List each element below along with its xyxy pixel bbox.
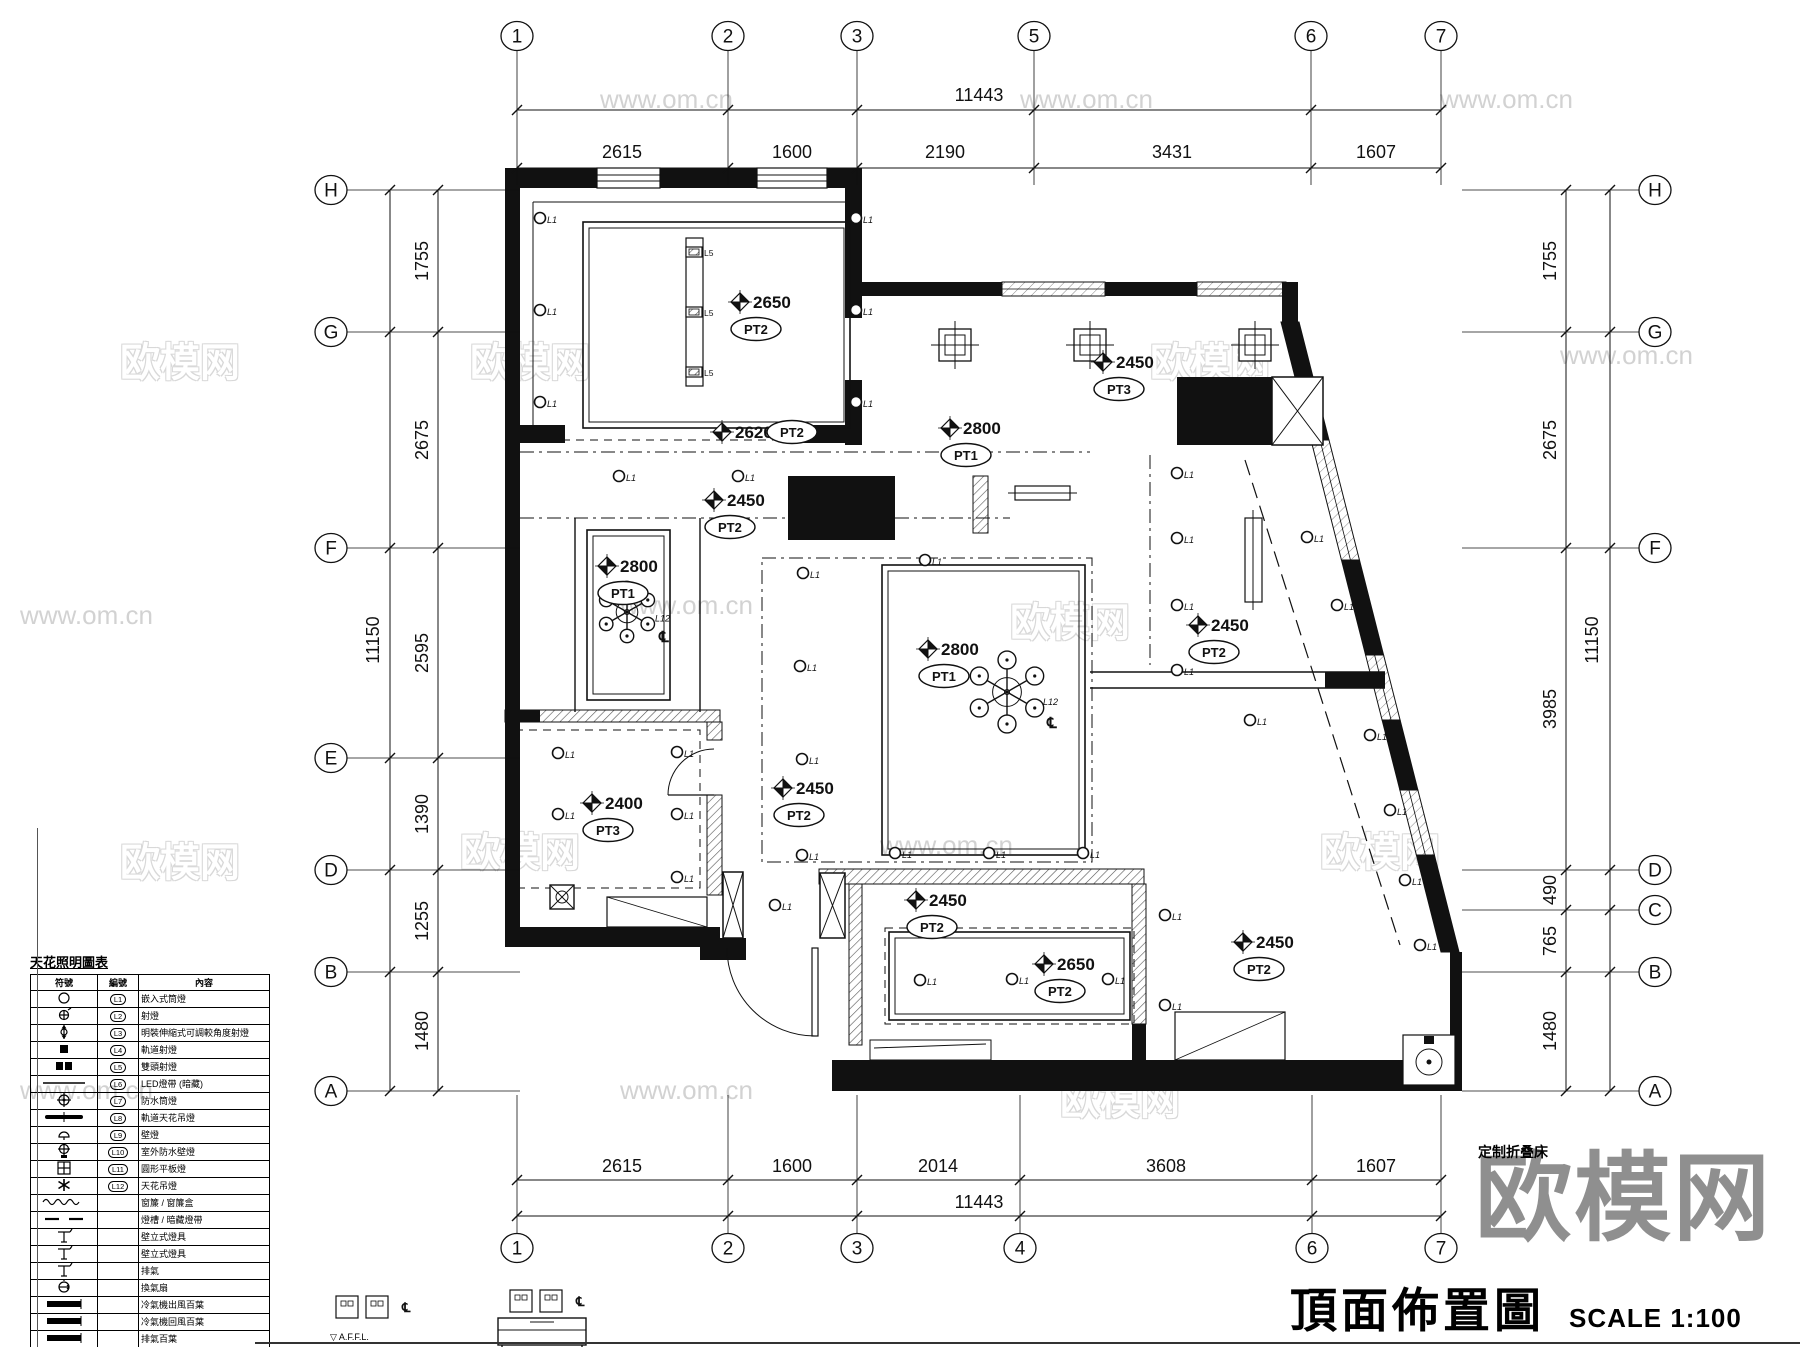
tpin-icon — [37, 1263, 91, 1277]
annotation-text: L1 — [1377, 732, 1387, 742]
legend-symbol-cell — [31, 1110, 98, 1127]
legend-row: 壁立式燈具 — [31, 1246, 270, 1263]
dim-text: 3985 — [1540, 689, 1560, 729]
legend-code: L5 — [110, 1062, 126, 1073]
legend-row: L1嵌入式筒燈 — [31, 991, 270, 1008]
sheet-left-rule — [37, 828, 38, 1347]
legend-desc: 冷氣機出風百葉 — [139, 1297, 270, 1314]
grid-bubble-label: C — [1648, 901, 1662, 922]
finish-tag: PT2 — [787, 808, 811, 823]
dim-text: 2014 — [918, 1156, 958, 1176]
legend-symbol-cell — [31, 1076, 98, 1093]
legend-header: 符號 — [31, 975, 98, 991]
downlight-symbol: L1 — [797, 754, 820, 767]
legend-symbol-cell — [31, 1297, 98, 1314]
fan-icon — [37, 1280, 91, 1294]
downlight-symbol: L1 — [1103, 974, 1126, 987]
legend-code-cell: L5 — [98, 1059, 139, 1076]
grid-left: HGFEDBA11150175526752595139012551480 — [315, 176, 520, 1106]
sink-drain — [1427, 1060, 1432, 1065]
ceiling-height-label: 2450PT2 — [904, 888, 967, 939]
grid-bubble: 6 — [1295, 22, 1327, 51]
downlight-symbol: L1 — [798, 568, 821, 581]
crosshair2-icon — [37, 1144, 91, 1158]
finish-tag: PT2 — [718, 520, 742, 535]
annotation-text: L1 — [1184, 470, 1194, 480]
annotation-text: ℄ — [401, 1300, 411, 1315]
grid-bubble: H — [1639, 176, 1671, 205]
annotation-text: L1 — [684, 749, 694, 759]
legend-row: L9壁燈 — [31, 1127, 270, 1144]
downlight-symbol: L1 — [1007, 974, 1030, 987]
door-leaf — [812, 948, 818, 1036]
legend-code-cell — [98, 1229, 139, 1246]
downlight-symbol: L1 — [1078, 848, 1101, 861]
legend-row: L3明裝伸縮式可調較角度射燈 — [31, 1025, 270, 1042]
downlight-symbol: L1 — [1172, 600, 1195, 613]
folding-bed-note: 定制折叠床 — [1478, 1142, 1548, 1162]
louver-icon — [37, 1314, 91, 1328]
legend-symbol-cell — [31, 1042, 98, 1059]
dim-text: 2595 — [412, 633, 432, 673]
dim-text: 11443 — [955, 1192, 1004, 1212]
downlight-symbol: L1 — [1172, 468, 1195, 481]
ceiling-height-value: 2650 — [753, 293, 791, 312]
annotation-text: L1 — [932, 557, 942, 567]
dim-text: 1390 — [412, 794, 432, 834]
legend-row: 排氣百葉 — [31, 1331, 270, 1347]
finish-tag: PT3 — [596, 823, 620, 838]
annotation-text: L1 — [1344, 602, 1354, 612]
circle-icon — [37, 991, 91, 1005]
dim-text: 1480 — [412, 1011, 432, 1051]
legend-desc: 窗簾 / 窗簾盒 — [139, 1195, 270, 1212]
louver-icon — [37, 1331, 91, 1345]
legend-row: L2射燈 — [31, 1008, 270, 1025]
ceiling-height-value: 2800 — [620, 557, 658, 576]
downlight-symbol: L1 — [1332, 600, 1355, 613]
annotation-text: L1 — [863, 307, 873, 317]
grid-bubble-label: E — [325, 749, 338, 770]
door-swing-arc — [727, 948, 815, 1036]
annotation-text: L5 — [704, 248, 714, 258]
finish-tag: PT1 — [611, 586, 635, 601]
grid-bubble: A — [1639, 1077, 1671, 1106]
sq-icon — [37, 1042, 91, 1056]
legend-title: 天花照明圖表 — [30, 952, 280, 971]
drawing-title: 頂面佈置圖 — [1290, 1284, 1545, 1337]
legend-code: L10 — [108, 1147, 129, 1158]
legend-code-cell — [98, 1331, 139, 1347]
ceiling-height-label: 2800PT1 — [938, 416, 1001, 467]
annotation-text: L1 — [1184, 602, 1194, 612]
ceiling-height-value: 2450 — [1116, 353, 1154, 372]
grid-bubble: 4 — [1004, 1234, 1036, 1263]
grid-bubble: 3 — [841, 22, 873, 51]
ceiling-height-value: 2450 — [727, 491, 765, 510]
legend-code-cell — [98, 1280, 139, 1297]
downlight-symbol: L1 — [1172, 665, 1195, 678]
finish-tag: PT2 — [920, 920, 944, 935]
downlight-symbol: L1 — [1160, 910, 1183, 923]
spot-icon — [37, 1008, 91, 1022]
legend-header: 編號 — [98, 975, 139, 991]
ceiling-height-label: 2450PT2 — [1186, 613, 1249, 664]
slant-parallel-dashed — [1245, 460, 1400, 945]
dim-text: 1607 — [1356, 1156, 1396, 1176]
track-spotlight-symbol: L5 — [686, 247, 714, 258]
window — [757, 168, 827, 188]
annotation-text: L1 — [684, 811, 694, 821]
legend-row: L7防水筒燈 — [31, 1093, 270, 1110]
grid-bubble-label: 2 — [723, 1239, 734, 1260]
wall-hatch — [707, 722, 722, 740]
dim-text: 11150 — [1582, 616, 1602, 663]
annotation-text: L12 — [1043, 697, 1058, 707]
legend-code-cell — [98, 1263, 139, 1280]
legend-desc: 冷氣機回風百葉 — [139, 1314, 270, 1331]
grid-top: 1235671144326151600219034311607 — [501, 22, 1457, 186]
legend-desc: 室外防水壁燈 — [139, 1144, 270, 1161]
dim-text: 2615 — [602, 1156, 642, 1176]
finish-tag: PT2 — [1202, 645, 1226, 660]
legend-symbol-cell — [31, 1195, 98, 1212]
annotation-text: L1 — [1257, 717, 1267, 727]
dim-text: 11150 — [363, 616, 383, 663]
finish-tag: PT2 — [1048, 984, 1072, 999]
legend-code: L6 — [110, 1079, 126, 1090]
downlight-symbol: L1 — [1400, 875, 1423, 888]
legend-desc: 燈槽 / 暗藏燈帶 — [139, 1212, 270, 1229]
legend-desc: 壁燈 — [139, 1127, 270, 1144]
legend-code-cell — [98, 1195, 139, 1212]
legend-code: L1 — [110, 994, 126, 1005]
grid-bubble-label: G — [1648, 323, 1663, 344]
gridsq-icon — [37, 1161, 91, 1175]
grid-bubble-label: D — [324, 861, 338, 882]
legend-symbol-cell — [31, 1280, 98, 1297]
grid-bubble: C — [1639, 896, 1671, 925]
sheet-bottom-rule — [255, 1342, 1800, 1344]
grid-bubble-label: H — [324, 181, 338, 202]
annotation-text: ℄ — [1046, 715, 1057, 732]
dim-text: 11443 — [955, 85, 1004, 105]
wall-hatch — [849, 884, 862, 1045]
legend-code-cell: L3 — [98, 1025, 139, 1042]
legend-code-cell: L9 — [98, 1127, 139, 1144]
legend-desc: 壁立式燈具 — [139, 1246, 270, 1263]
switch-box — [510, 1290, 532, 1312]
grid-bubble: F — [315, 534, 347, 563]
grid-bottom: 1234671144326151600201436081607 — [501, 1095, 1457, 1263]
grid-bubble: E — [315, 744, 347, 773]
legend-desc: 雙頭射燈 — [139, 1059, 270, 1076]
grid-bubble: H — [315, 176, 347, 205]
downlight-symbol: L1 — [797, 850, 820, 863]
ceiling-detail-layer — [515, 222, 1455, 1085]
wall-hatch — [819, 869, 1144, 884]
annotation-text: L1 — [547, 307, 557, 317]
tpin-icon — [37, 1229, 91, 1243]
annotation-text: L5 — [704, 308, 714, 318]
downlight-symbol: L1 — [1302, 532, 1325, 545]
annotation-text: L1 — [565, 750, 575, 760]
legend-desc: 換氣扇 — [139, 1280, 270, 1297]
legend-code-cell: L12 — [98, 1178, 139, 1195]
downlight-symbol: L1 — [672, 809, 695, 822]
downlight-symbol: L1 — [770, 900, 793, 913]
grid-bubble: 7 — [1425, 1234, 1457, 1263]
finish-tag: PT2 — [780, 425, 804, 440]
annotation-text: L1 — [684, 874, 694, 884]
legend-symbol-cell — [31, 1008, 98, 1025]
legend-desc: 防水筒燈 — [139, 1093, 270, 1110]
legend-symbol-cell — [31, 1161, 98, 1178]
legend-row: 燈槽 / 暗藏燈帶 — [31, 1212, 270, 1229]
annotation-text: L1 — [863, 215, 873, 225]
grid-bubble: 1 — [501, 22, 533, 51]
ceiling-height-value: 2650 — [1057, 955, 1095, 974]
legend-code-cell — [98, 1297, 139, 1314]
annotation-text: L1 — [1172, 1002, 1182, 1012]
downlight-symbol: L1 — [553, 748, 576, 761]
downlight-symbol: L1 — [1160, 1000, 1183, 1013]
grid-bubble: 1 — [501, 1234, 533, 1263]
legend-symbol-cell — [31, 1178, 98, 1195]
legend-desc: 嵌入式筒燈 — [139, 991, 270, 1008]
annotation-text: L1 — [863, 399, 873, 409]
grid-bubble-label: 6 — [1306, 27, 1317, 48]
grid-square-light-symbol — [931, 321, 979, 369]
grid-bubble: A — [315, 1077, 347, 1106]
legend-row: L10室外防水壁燈 — [31, 1144, 270, 1161]
dim-text: 1607 — [1356, 142, 1396, 162]
ceiling-height-value: 2800 — [963, 419, 1001, 438]
ceiling-height-value: 2450 — [929, 891, 967, 910]
grid-bubble-label: A — [325, 1082, 338, 1103]
annotation-text: L1 — [1184, 667, 1194, 677]
annotation-text: L1 — [547, 399, 557, 409]
grid-bubble-label: F — [325, 539, 337, 560]
dim-text: 490 — [1540, 875, 1560, 905]
legend-code: L4 — [110, 1045, 126, 1056]
ceiling-height-value: 2400 — [605, 794, 643, 813]
downlight-symbol: L1 — [672, 747, 695, 760]
dim-text: 1755 — [412, 241, 432, 281]
legend-desc: 排氣百葉 — [139, 1331, 270, 1347]
annotation-text: L12 — [655, 614, 670, 624]
track-spotlight-symbol: L5 — [686, 367, 714, 378]
annotation-text: L1 — [782, 902, 792, 912]
star-icon — [37, 1178, 91, 1192]
legend-symbol-cell — [31, 1263, 98, 1280]
wall-black-slant — [1382, 720, 1418, 790]
annotation-text: L1 — [1412, 877, 1422, 887]
legend-code-cell — [98, 1212, 139, 1229]
ceiling-height-value: 2450 — [1256, 933, 1294, 952]
finish-tag: PT2 — [744, 322, 768, 337]
downlight-symbol: L1 — [672, 872, 695, 885]
legend-row: L6LED燈帶 (暗藏) — [31, 1076, 270, 1093]
legend-symbol-cell — [31, 1314, 98, 1331]
downlight-symbol: L1 — [535, 213, 558, 226]
annotation-text: L1 — [745, 473, 755, 483]
crosshair-icon — [37, 1093, 91, 1107]
grid-bubble-label: A — [1649, 1082, 1662, 1103]
dashes-icon — [37, 1212, 91, 1226]
grid-bubble-label: 3 — [852, 27, 863, 48]
grid-bubble: 3 — [841, 1234, 873, 1263]
downlight-symbol: L1 — [553, 809, 576, 822]
legend-symbol-cell — [31, 991, 98, 1008]
legend-desc: 壁立式燈具 — [139, 1229, 270, 1246]
grid-bubble: 2 — [712, 1234, 744, 1263]
dim-text: 1755 — [1540, 241, 1560, 281]
legend-row: 換氣扇 — [31, 1280, 270, 1297]
legend-code-cell: L1 — [98, 991, 139, 1008]
legend-code: L12 — [108, 1181, 129, 1192]
downlight-symbol: L1 — [795, 661, 818, 674]
legend-code-cell: L11 — [98, 1161, 139, 1178]
dim-text: 3608 — [1146, 1156, 1186, 1176]
annotation-text: L1 — [927, 977, 937, 987]
legend-code-cell — [98, 1314, 139, 1331]
drawing-title-block: 頂面佈置圖SCALE 1:100 — [1290, 1272, 1742, 1341]
ceiling-height-label: 2650PT2 — [1032, 952, 1095, 1003]
ceiling-height-value: 2450 — [796, 779, 834, 798]
dim-text: 3431 — [1152, 142, 1192, 162]
dim-text: 1600 — [772, 142, 812, 162]
legend-row: L12天花吊燈 — [31, 1178, 270, 1195]
annotation-text: L1 — [1184, 535, 1194, 545]
legend-desc: 射燈 — [139, 1008, 270, 1025]
grid-bubble-label: 6 — [1307, 1239, 1318, 1260]
window — [597, 168, 660, 188]
annotation-text: ℄ — [658, 629, 669, 646]
grid-bubble-label: 5 — [1029, 27, 1040, 48]
ceiling-height-label: 2800PT1 — [916, 637, 979, 688]
ceiling-plan-sheet: www.om.cnwww.om.cnwww.om.cn欧模网欧模网欧模网www.… — [0, 0, 1800, 1347]
legend-table: 天花照明圖表 符號編號內容L1嵌入式筒燈L2射燈L3明裝伸縮式可調較角度射燈L4… — [30, 952, 280, 1347]
legend-code: L9 — [110, 1130, 126, 1141]
annotation-text: L1 — [809, 756, 819, 766]
annotation-text: L1 — [996, 850, 1006, 860]
legend-row: L4軌道射燈 — [31, 1042, 270, 1059]
legend-symbol-cell — [31, 1025, 98, 1042]
grid-bubble: G — [1639, 318, 1671, 347]
legend-code: L7 — [110, 1096, 126, 1107]
legend-code-cell: L8 — [98, 1110, 139, 1127]
dim-text: 2615 — [602, 142, 642, 162]
switch-box — [366, 1296, 388, 1318]
grid-bubble: B — [1639, 958, 1671, 987]
tray-ceiling-inner — [589, 228, 844, 422]
legend-code: L3 — [110, 1028, 126, 1039]
legend-code-cell — [98, 1246, 139, 1263]
walllamp-icon — [37, 1127, 91, 1141]
grid-bubble: B — [315, 958, 347, 987]
legend-code-cell: L7 — [98, 1093, 139, 1110]
ceiling-height-label: 2450PT2 — [1231, 930, 1294, 981]
shaft-black — [788, 476, 895, 540]
wavy-icon — [37, 1195, 91, 1209]
adj-icon — [37, 1025, 91, 1039]
legend-row: L11圓形平板燈 — [31, 1161, 270, 1178]
annotation-text: L1 — [807, 663, 817, 673]
grid-bubble: 5 — [1018, 22, 1050, 51]
ceiling-height-label: 2650PT2 — [728, 290, 791, 341]
downlight-symbol: L1 — [535, 305, 558, 318]
legend-symbol-cell — [31, 1127, 98, 1144]
wall-black — [505, 168, 520, 947]
annotation-text: L1 — [1397, 807, 1407, 817]
legend-desc: 天花吊燈 — [139, 1178, 270, 1195]
legend-symbol-cell — [31, 1059, 98, 1076]
legend-desc: LED燈帶 (暗藏) — [139, 1076, 270, 1093]
legend-code-cell: L4 — [98, 1042, 139, 1059]
legend-row: 冷氣機出風百葉 — [31, 1297, 270, 1314]
legend-row: 排氣 — [31, 1263, 270, 1280]
wall-black — [832, 1060, 1462, 1091]
annotation-text: ℄ — [575, 1294, 585, 1309]
annotation-text: L1 — [626, 473, 636, 483]
shaft-black — [1177, 377, 1272, 445]
annotation-text: L1 — [1427, 942, 1437, 952]
ceiling-height-label: 2400PT3 — [580, 791, 643, 842]
dim-text: 1255 — [412, 901, 432, 941]
ceiling-height-label: 2450PT3 — [1091, 350, 1154, 401]
chandelier-symbol: L12℄ — [970, 651, 1058, 733]
dim-text: 2675 — [412, 420, 432, 460]
annotation-text: L1 — [1314, 534, 1324, 544]
grid-bubble-label: 4 — [1015, 1239, 1026, 1260]
legend-desc: 排氣 — [139, 1263, 270, 1280]
annotation-text: L1 — [565, 811, 575, 821]
track-spotlight-symbol: L5 — [686, 307, 714, 318]
dim-text: 2675 — [1540, 420, 1560, 460]
downlight-symbol: L1 — [535, 397, 558, 410]
annotation-text: L5 — [704, 368, 714, 378]
downlight-symbol: L1 — [1415, 940, 1438, 953]
grid-bubble-label: B — [325, 963, 338, 984]
annotation-text: L1 — [902, 850, 912, 860]
legend-desc: 明裝伸縮式可調較角度射燈 — [139, 1025, 270, 1042]
finish-tag: PT2 — [1247, 962, 1271, 977]
legend-desc: 軌道射燈 — [139, 1042, 270, 1059]
grid-bubble-label: 3 — [852, 1239, 863, 1260]
legend-symbol-cell — [31, 1144, 98, 1161]
legend-code-cell: L10 — [98, 1144, 139, 1161]
grid-bubble-label: G — [324, 323, 339, 344]
legend-row: 冷氣機回風百葉 — [31, 1314, 270, 1331]
legend-code-cell: L2 — [98, 1008, 139, 1025]
annotation-text: L1 — [1172, 912, 1182, 922]
legend-code: L2 — [110, 1011, 126, 1022]
grid-right: HGFDCBA111501755267539854907651480 — [1462, 176, 1671, 1106]
legend-row: 窗簾 / 窗簾盒 — [31, 1195, 270, 1212]
finish-tag: PT3 — [1107, 382, 1131, 397]
legend-code: L8 — [110, 1113, 126, 1124]
louver-icon — [37, 1297, 91, 1311]
ceiling-height-value: 2450 — [1211, 616, 1249, 635]
mini-elevation-layer: ℄℄ — [336, 1290, 586, 1347]
grid-square-light-symbol — [1231, 321, 1279, 369]
sq2-icon — [37, 1059, 91, 1073]
annotation-text: L1 — [1115, 976, 1125, 986]
grid-bubble-label: 7 — [1436, 27, 1447, 48]
switch-box — [540, 1290, 562, 1312]
ceiling-height-label: 2450PT2 — [702, 488, 765, 539]
